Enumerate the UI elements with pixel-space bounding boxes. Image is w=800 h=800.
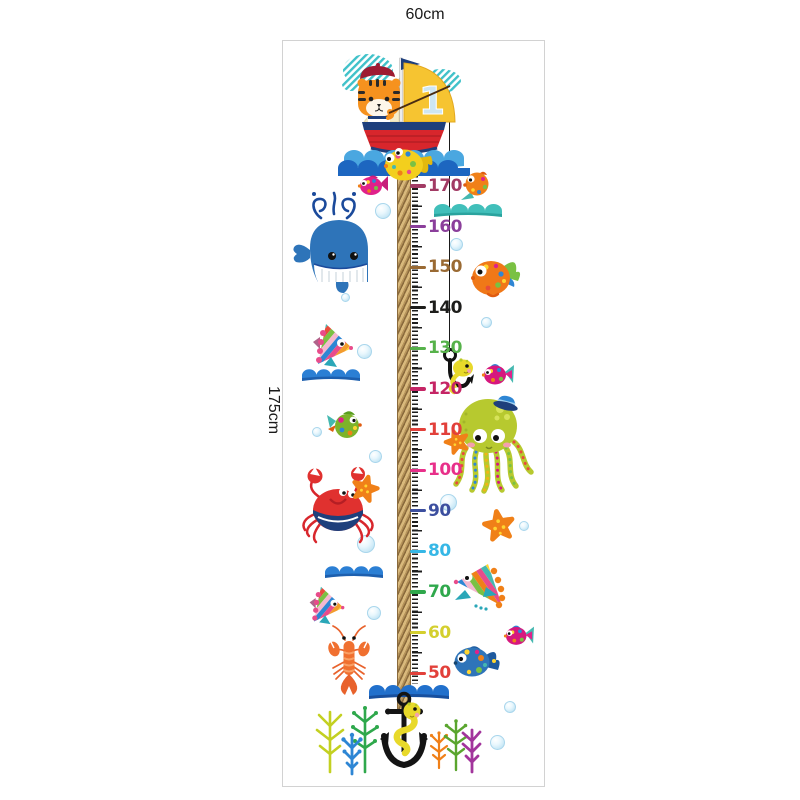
whale-eye-left [328, 252, 336, 260]
ruler-tick-80 [410, 550, 426, 553]
height-dimension-label: 175cm [264, 386, 282, 434]
rainbow-fish-left-upper [311, 322, 355, 368]
ruler-tick-110 [410, 428, 426, 431]
bubble [312, 427, 322, 437]
bubble [504, 701, 516, 713]
ruler-number-70: 70 [428, 581, 451, 603]
ruler-number-100: 100 [428, 459, 462, 481]
ruler-tick-160 [410, 225, 426, 228]
ruler-number-110: 110 [428, 419, 462, 441]
ruler-tick-50 [410, 672, 426, 675]
ruler-number-90: 90 [428, 500, 451, 522]
lobster [325, 624, 373, 698]
coral-tree-blue [344, 736, 360, 774]
bubble [481, 317, 492, 328]
width-dimension-label: 60cm [388, 6, 462, 24]
ruler-number-60: 60 [428, 622, 451, 644]
ruler-number-80: 80 [428, 540, 451, 562]
rope-ruler [397, 166, 411, 712]
ruler-tick-150 [410, 266, 426, 269]
bubble [450, 238, 463, 251]
orange-spotted-fish [470, 254, 520, 298]
ruler-tick-70 [410, 590, 426, 593]
ruler-number-150: 150 [428, 256, 462, 278]
blue-wave-left-2 [322, 562, 386, 579]
ruler-number-170: 170 [428, 175, 462, 197]
ruler-number-160: 160 [428, 216, 462, 238]
coral-tree-green-2 [446, 722, 466, 770]
pink-fish-bottom [504, 620, 534, 650]
tiger-in-sailboat: 1 [338, 46, 470, 186]
ruler-number-50: 50 [428, 662, 451, 684]
starfish [482, 510, 516, 542]
whale-tail [293, 245, 310, 263]
ruler-number-130: 130 [428, 337, 462, 359]
whale-spout [313, 193, 354, 218]
ruler-tick-100 [410, 469, 426, 472]
pink-fish-mid [482, 358, 514, 390]
bubble [367, 606, 381, 620]
bubble [519, 521, 529, 531]
ruler-tick-90 [410, 509, 426, 512]
ruler-number-140: 140 [428, 297, 462, 319]
coral-trees-left [312, 702, 386, 776]
cloud-left2 [342, 77, 360, 91]
coral-trees-right [429, 714, 481, 772]
product-image: 60cm 175cm 17016015014013012011010090807… [0, 0, 800, 800]
orange-fish-top [459, 168, 493, 202]
ruler-tick-120 [410, 387, 426, 390]
ruler-number-120: 120 [428, 378, 462, 400]
ruler-tick-60 [410, 631, 426, 634]
ruler-tick-170 [410, 184, 426, 187]
rainbow-fish-right [452, 560, 510, 614]
pink-fish-top [357, 172, 389, 198]
green-fish [327, 407, 363, 443]
anchor-with-yellow-eel [379, 690, 429, 772]
sail-number: 1 [419, 79, 445, 123]
whale-eye-right [350, 252, 358, 260]
coral-tree-orange [431, 734, 447, 768]
blue-spotted-fish [452, 641, 500, 681]
bubble [490, 735, 505, 750]
crab-with-starfish [299, 462, 385, 544]
coral-tree-purple [463, 730, 480, 772]
ruler-tick-140 [410, 306, 426, 309]
coral-tree-yellowgreen [317, 712, 343, 772]
rainbow-fish-left-lower [307, 585, 347, 625]
bubble [357, 344, 372, 359]
lobster-tail [341, 674, 357, 695]
whale [292, 188, 378, 302]
whale-fin [336, 282, 349, 293]
hull-gunwale [362, 122, 446, 130]
ruler-tick-130 [410, 347, 426, 350]
anchor-ring [399, 694, 410, 705]
